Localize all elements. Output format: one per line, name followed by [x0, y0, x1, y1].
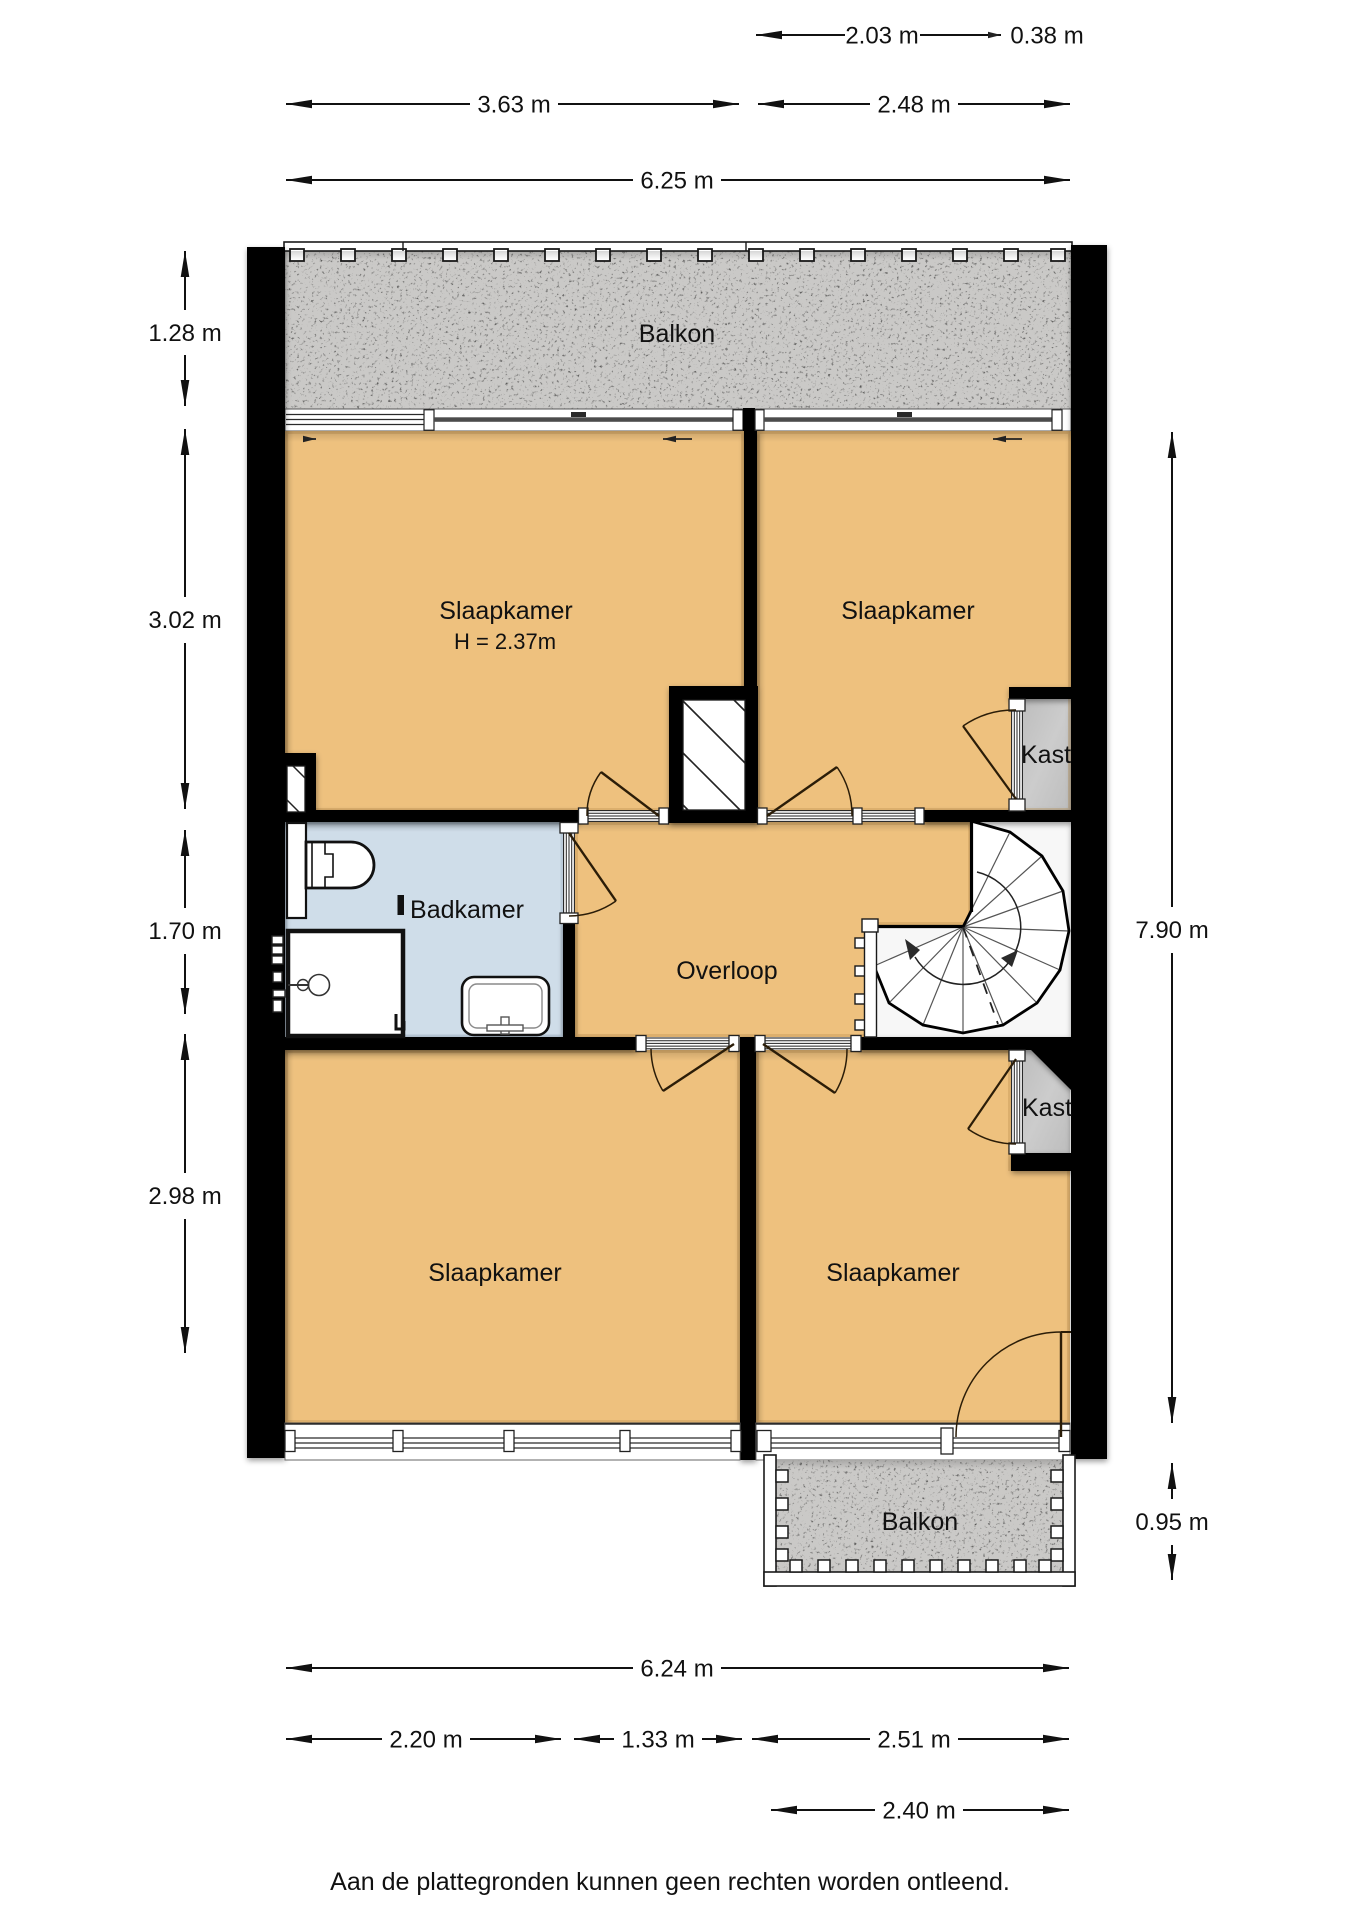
- svg-text:Slaapkamer: Slaapkamer: [428, 1259, 561, 1287]
- svg-text:Balkon: Balkon: [639, 320, 715, 348]
- svg-text:0.38 m: 0.38 m: [1010, 23, 1083, 50]
- svg-text:2.03 m: 2.03 m: [845, 23, 918, 50]
- svg-text:1.33 m: 1.33 m: [621, 1727, 694, 1754]
- svg-text:Kast: Kast: [1021, 741, 1071, 769]
- svg-text:3.02 m: 3.02 m: [148, 607, 221, 634]
- svg-text:7.90 m: 7.90 m: [1135, 917, 1208, 944]
- svg-text:6.25 m: 6.25 m: [640, 168, 713, 195]
- svg-text:H = 2.37m: H = 2.37m: [454, 629, 556, 654]
- svg-text:Badkamer: Badkamer: [410, 896, 524, 924]
- svg-text:2.98 m: 2.98 m: [148, 1183, 221, 1210]
- svg-text:3.63 m: 3.63 m: [477, 92, 550, 119]
- svg-text:Kast: Kast: [1022, 1094, 1072, 1122]
- svg-text:Slaapkamer: Slaapkamer: [439, 597, 572, 625]
- svg-text:Slaapkamer: Slaapkamer: [841, 597, 974, 625]
- svg-text:Slaapkamer: Slaapkamer: [826, 1259, 959, 1287]
- svg-text:1.70 m: 1.70 m: [148, 918, 221, 945]
- svg-text:Balkon: Balkon: [882, 1508, 958, 1536]
- svg-text:2.51 m: 2.51 m: [877, 1727, 950, 1754]
- svg-text:2.48 m: 2.48 m: [877, 92, 950, 119]
- svg-text:1.28 m: 1.28 m: [148, 320, 221, 347]
- svg-text:2.20 m: 2.20 m: [389, 1727, 462, 1754]
- svg-text:6.24 m: 6.24 m: [640, 1656, 713, 1683]
- svg-text:0.95 m: 0.95 m: [1135, 1509, 1208, 1536]
- svg-text:Aan de plattegronden kunnen ge: Aan de plattegronden kunnen geen rechten…: [330, 1868, 1010, 1896]
- svg-text:2.40 m: 2.40 m: [882, 1798, 955, 1825]
- svg-text:Overloop: Overloop: [676, 957, 777, 985]
